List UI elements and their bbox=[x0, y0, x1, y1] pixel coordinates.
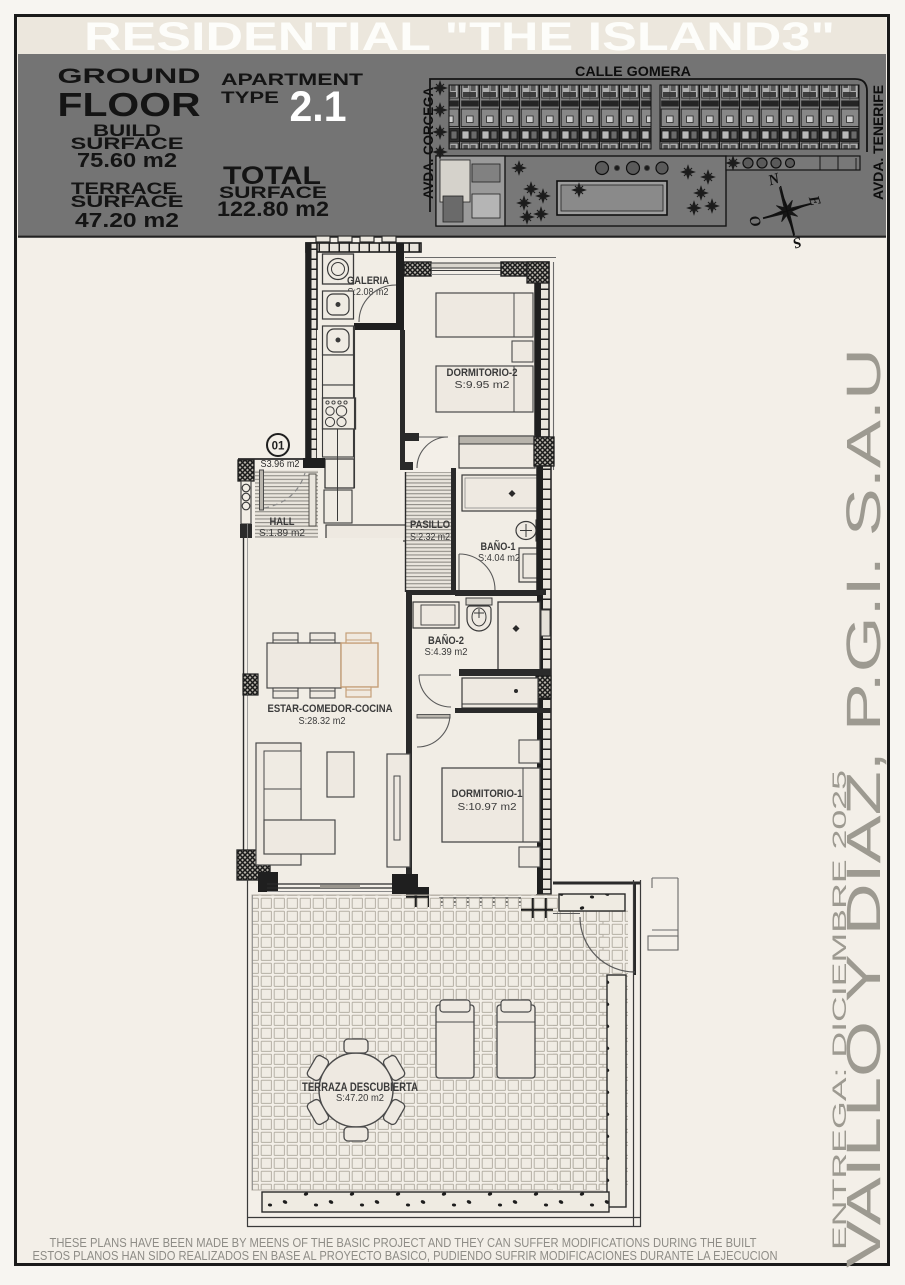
svg-text:SURFACE: SURFACE bbox=[71, 192, 184, 211]
svg-text:GROUND: GROUND bbox=[58, 64, 201, 88]
svg-text:ESTOS PLANOS HAN SIDO REALIZAD: ESTOS PLANOS HAN SIDO REALIZADOS EN BASE… bbox=[33, 1248, 778, 1263]
svg-text:ESTAR-COMEDOR-COCINA: ESTAR-COMEDOR-COCINA bbox=[268, 703, 393, 715]
svg-text:2.1: 2.1 bbox=[290, 83, 347, 131]
svg-text:S:10.97 m2: S:10.97 m2 bbox=[458, 802, 517, 813]
svg-text:S:47.20 m2: S:47.20 m2 bbox=[336, 1093, 384, 1104]
svg-text:VAILLO Y DIAZ, P.G.I. S.A.U: VAILLO Y DIAZ, P.G.I. S.A.U bbox=[838, 348, 891, 1268]
svg-text:S:9.95 m2: S:9.95 m2 bbox=[455, 380, 511, 391]
svg-text:BAÑO-2: BAÑO-2 bbox=[428, 634, 464, 647]
svg-text:AVDA. CORCEGA: AVDA. CORCEGA bbox=[420, 87, 436, 199]
svg-text:S:1.89 m2: S:1.89 m2 bbox=[259, 528, 305, 539]
svg-text:122.80 m2: 122.80 m2 bbox=[217, 198, 329, 221]
svg-text:PASILLO: PASILLO bbox=[410, 519, 450, 531]
svg-text:S:4.04 m2: S:4.04 m2 bbox=[478, 553, 520, 564]
svg-text:S:4.39 m2: S:4.39 m2 bbox=[425, 647, 468, 658]
svg-text:S:28.32 m2: S:28.32 m2 bbox=[299, 716, 346, 727]
svg-text:DORMITORIO-1: DORMITORIO-1 bbox=[452, 788, 523, 800]
svg-text:FLOOR: FLOOR bbox=[58, 86, 201, 123]
svg-text:BAÑO-1: BAÑO-1 bbox=[481, 540, 516, 553]
svg-text:HALL: HALL bbox=[270, 516, 295, 528]
svg-text:S3.96 m2: S3.96 m2 bbox=[261, 459, 300, 470]
svg-text:TYPE: TYPE bbox=[221, 88, 279, 107]
svg-text:75.60 m2: 75.60 m2 bbox=[77, 150, 177, 172]
svg-text:47.20 m2: 47.20 m2 bbox=[75, 210, 179, 232]
svg-text:GALERIA: GALERIA bbox=[347, 275, 389, 287]
svg-text:AVDA. TENERIFE: AVDA. TENERIFE bbox=[870, 85, 886, 200]
svg-text:CALLE GOMERA: CALLE GOMERA bbox=[575, 63, 691, 79]
svg-text:01: 01 bbox=[272, 441, 285, 453]
svg-text:DORMITORIO-2: DORMITORIO-2 bbox=[447, 367, 518, 379]
svg-text:RESIDENTIAL "THE ISLAND3": RESIDENTIAL "THE ISLAND3" bbox=[84, 15, 835, 59]
svg-text:S:2.32 m2: S:2.32 m2 bbox=[410, 532, 450, 543]
